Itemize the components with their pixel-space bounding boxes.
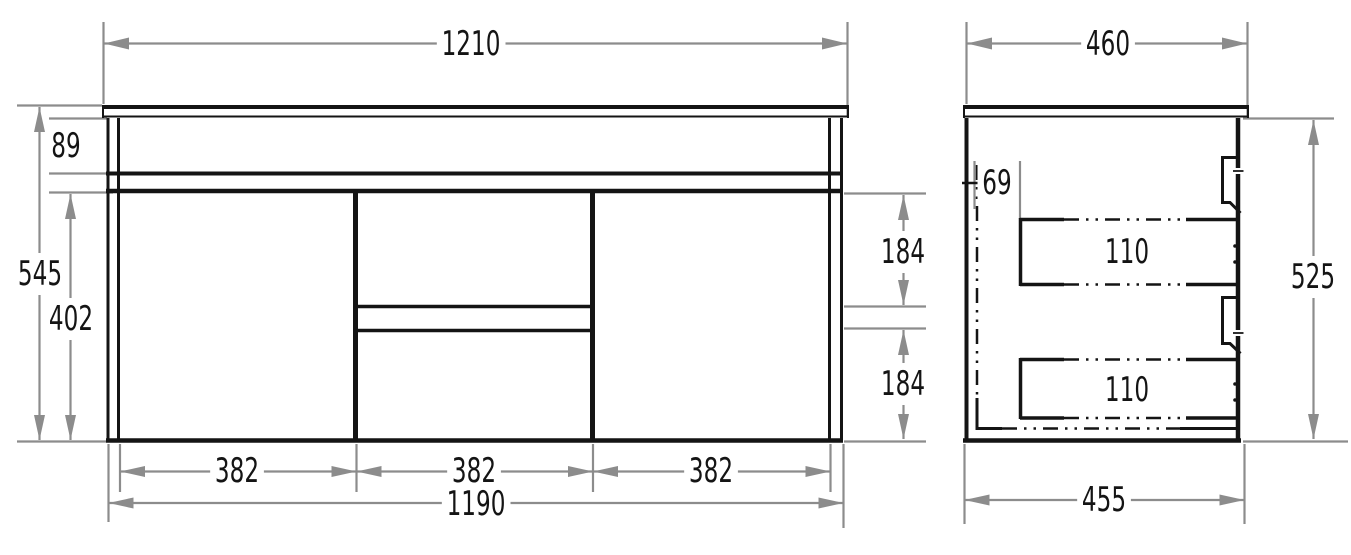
- dim-side-body-depth: 455: [1077, 479, 1131, 521]
- front-dimension-rules: [40, 44, 904, 504]
- front-door-top-and-bottom-lines: [106, 191, 843, 441]
- front-carcass-walls: [108, 118, 842, 441]
- technical-drawing: 1210 89 545 402 184 184 382 382 382 1190…: [0, 0, 1351, 555]
- drawing-canvas: [0, 0, 1351, 555]
- dim-section-width-left: 382: [210, 450, 264, 492]
- dim-side-back-clearance: 69: [978, 162, 1017, 204]
- dim-front-body-width: 1190: [442, 483, 510, 525]
- front-door-dividers: [356, 193, 593, 440]
- dim-upper-runner-height: 110: [1100, 231, 1154, 273]
- front-structure: [102, 105, 849, 441]
- dim-front-panel-height: 402: [44, 298, 98, 340]
- front-middle-drawer-gap-lines: [358, 307, 590, 331]
- dim-lower-runner-height: 110: [1100, 369, 1154, 411]
- dim-section-width-right: 382: [684, 450, 738, 492]
- dim-front-overall-height: 545: [13, 253, 67, 295]
- dim-front-overall-width: 1210: [437, 23, 505, 65]
- dim-front-counter-rail-height: 89: [47, 125, 86, 167]
- side-hidden-centerlines: [977, 165, 1186, 429]
- dim-upper-drawer-height: 184: [876, 231, 930, 273]
- dim-lower-drawer-height: 184: [876, 363, 930, 405]
- dim-side-counter-depth: 460: [1081, 23, 1135, 65]
- dim-side-body-height: 525: [1286, 256, 1340, 298]
